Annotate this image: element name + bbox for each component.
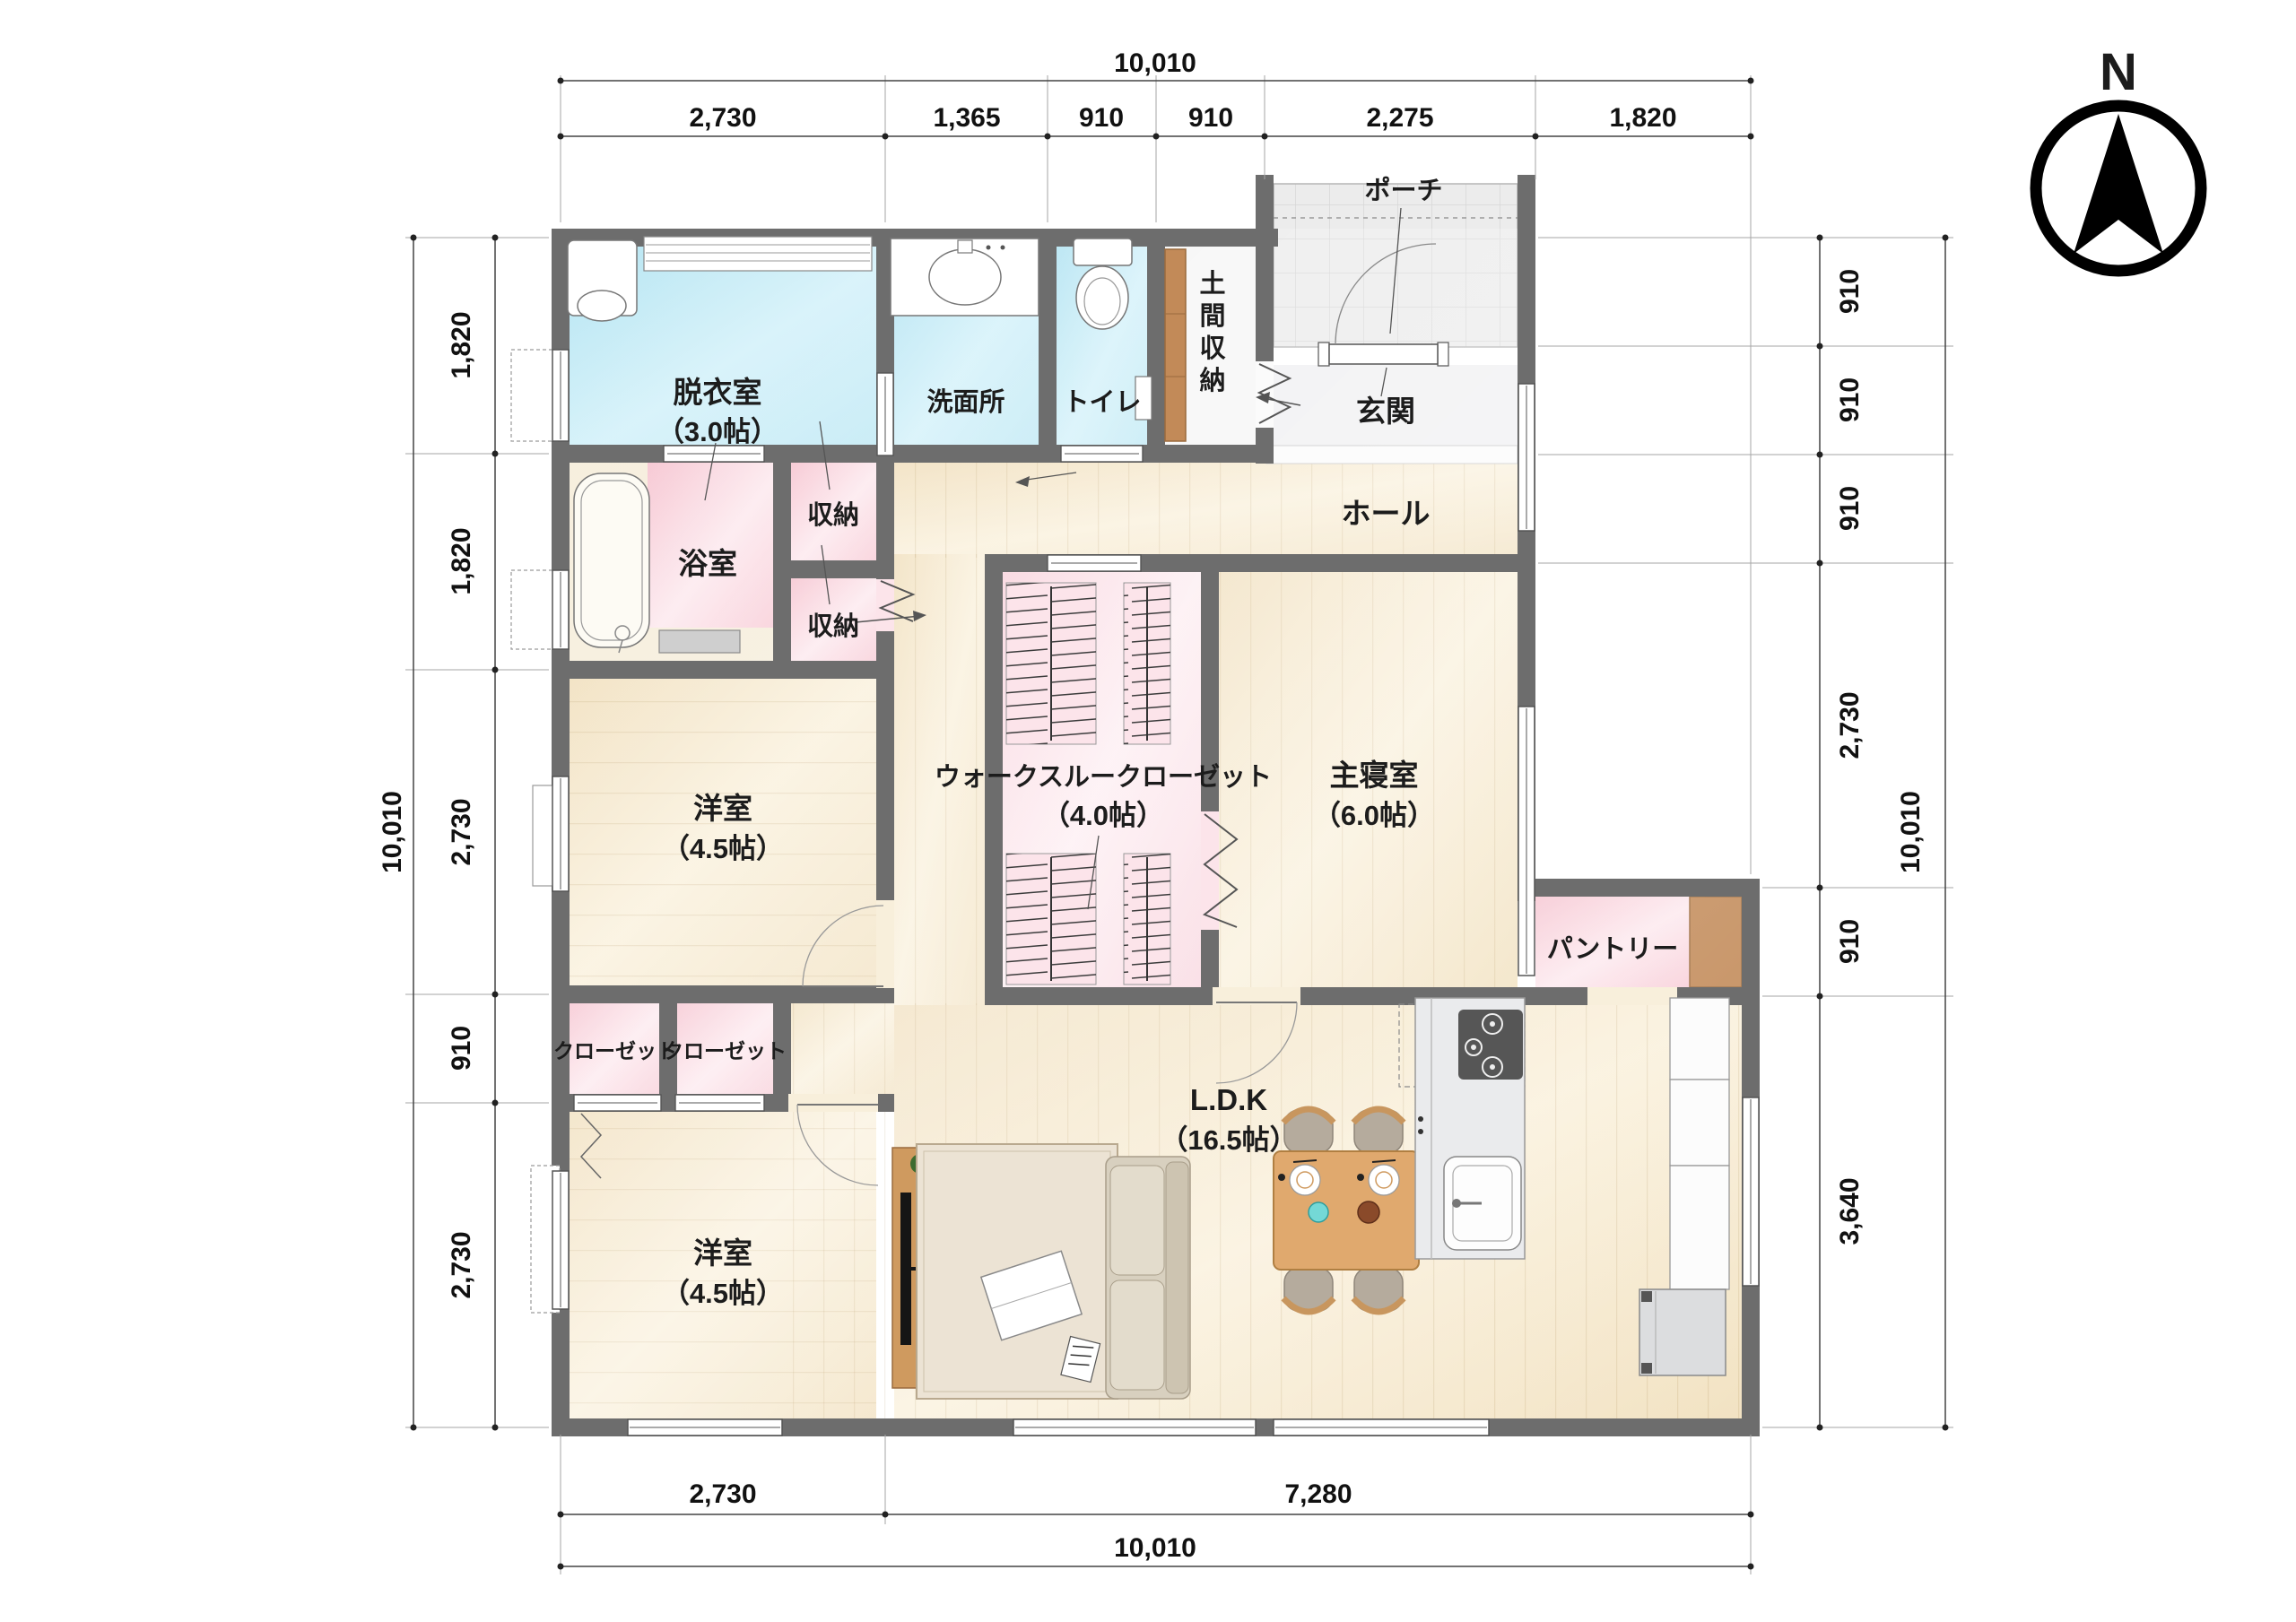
dim-right-5: 3,640 — [1835, 1177, 1865, 1245]
label-bedroom2-size: （4.5帖） — [662, 1278, 784, 1309]
vanity-basin — [929, 249, 1001, 305]
floor-plan-canvas: 脱衣室 （3.0帖） 洗面所 トイレ 土 間 収 納 ポーチ 玄関 ホール 浴室… — [0, 0, 2296, 1622]
dim-top-4: 2,275 — [1366, 103, 1433, 133]
svg-text:間: 間 — [1199, 302, 1225, 331]
plate — [1369, 1165, 1399, 1195]
dim-left-2: 2,730 — [447, 798, 476, 865]
shutter-box-bath — [511, 570, 554, 649]
sofa — [1106, 1157, 1190, 1399]
door-gap-bedroom1 — [876, 900, 894, 988]
label-hall: ホール — [1342, 497, 1431, 530]
kitchen-island — [1399, 998, 1525, 1259]
label-storage1: 収納 — [807, 499, 859, 530]
stove — [1458, 1010, 1523, 1080]
dim-right-total: 10,010 — [1896, 791, 1926, 873]
dining-chair — [1353, 1268, 1404, 1312]
dim-bottom-0: 2,730 — [689, 1479, 756, 1509]
dim-right-4: 910 — [1835, 919, 1865, 964]
dim-top-1: 1,365 — [933, 103, 1000, 133]
refrigerator — [1639, 1289, 1726, 1375]
dim-left-total: 10,010 — [378, 791, 407, 873]
dim-left-0: 1,820 — [447, 311, 476, 378]
label-storage2: 収納 — [807, 611, 859, 641]
label-wtc-size: （4.0帖） — [1042, 800, 1164, 831]
dim-right-0: 910 — [1835, 269, 1865, 314]
washing-machine-drum — [578, 291, 626, 321]
label-toilet: トイレ — [1063, 388, 1141, 417]
label-porch: ポーチ — [1364, 176, 1442, 205]
north-label: N — [2100, 43, 2137, 101]
dim-left-1: 1,820 — [447, 527, 476, 594]
svg-text:土: 土 — [1199, 269, 1225, 299]
dim-top-5: 1,820 — [1609, 103, 1676, 133]
vanity-faucet — [958, 240, 972, 253]
kitchen-back-counter — [1670, 1080, 1729, 1166]
label-pantry: パントリー — [1547, 935, 1678, 964]
dim-bottom-1: 7,280 — [1284, 1479, 1352, 1509]
dim-left-4: 2,730 — [447, 1231, 476, 1298]
svg-text:納: 納 — [1199, 365, 1225, 395]
door-gap-wtc-master — [1201, 811, 1219, 930]
floor-plan-page: 脱衣室 （3.0帖） 洗面所 トイレ 土 間 収 納 ポーチ 玄関 ホール 浴室… — [0, 0, 2296, 1622]
label-bath: 浴室 — [678, 547, 737, 580]
label-bedroom1: 洋室 — [693, 792, 752, 825]
entry-door-jamb-right — [1438, 343, 1448, 366]
dim-top-3: 910 — [1188, 103, 1233, 133]
dining-chair — [1283, 1268, 1334, 1312]
label-bedroom1-size: （4.5帖） — [662, 833, 784, 864]
dim-top-2: 910 — [1079, 103, 1124, 133]
dim-right-1: 910 — [1835, 377, 1865, 422]
label-wtc: ウォークスルークローゼット — [935, 762, 1272, 792]
pantry-opening — [1587, 987, 1677, 1005]
tv — [900, 1193, 911, 1345]
label-datsuishitsu-size: （3.0帖） — [657, 416, 778, 447]
plate — [1290, 1165, 1320, 1195]
label-bedroom2: 洋室 — [693, 1236, 752, 1270]
shutter-box-datsui — [511, 350, 558, 441]
label-ldk: L.D.K — [1190, 1083, 1267, 1116]
label-senmenjo: 洗面所 — [926, 387, 1004, 417]
linen-shelf — [644, 237, 872, 271]
dim-right-2: 910 — [1835, 486, 1865, 531]
kitchen-back-counter — [1670, 998, 1729, 1080]
dim-left-3: 910 — [447, 1026, 476, 1071]
dining-chair — [1353, 1109, 1404, 1153]
entry-door — [1329, 344, 1438, 364]
dimensions-left: 10,010 1,820 1,820 2,730 910 2,730 — [378, 235, 499, 1431]
label-ldk-size: （16.5帖） — [1160, 1124, 1297, 1156]
dim-right-3: 2,730 — [1835, 691, 1865, 759]
dimensions-right: 910 910 910 2,730 910 3,640 10,010 — [1817, 235, 1949, 1431]
north-arrow: N — [2036, 43, 2201, 271]
cup — [1309, 1202, 1328, 1222]
dimensions-bottom: 2,730 7,280 10,010 — [558, 1479, 1754, 1570]
label-genkan: 玄関 — [1356, 395, 1415, 428]
doma-shelf — [1165, 249, 1186, 441]
kitchen-back-counter — [1670, 1166, 1729, 1289]
label-closet2: クローゼット — [663, 1039, 787, 1063]
dim-top-0: 2,730 — [689, 103, 756, 133]
label-master: 主寝室 — [1330, 759, 1419, 792]
entry-door-jamb-left — [1318, 343, 1329, 366]
label-master-size: （6.0帖） — [1313, 800, 1435, 831]
bathtub — [574, 473, 649, 647]
bath-counter — [659, 630, 740, 653]
bowl — [1358, 1201, 1379, 1223]
dim-top-total: 10,010 — [1114, 48, 1196, 78]
label-closet1: クローゼット — [553, 1039, 677, 1063]
dim-bottom-total: 10,010 — [1114, 1533, 1196, 1563]
svg-text:収: 収 — [1199, 334, 1226, 363]
label-datsuishitsu: 脱衣室 — [674, 376, 762, 409]
door-gap-bedroom2 — [788, 1094, 878, 1112]
toilet-tank — [1074, 239, 1132, 265]
